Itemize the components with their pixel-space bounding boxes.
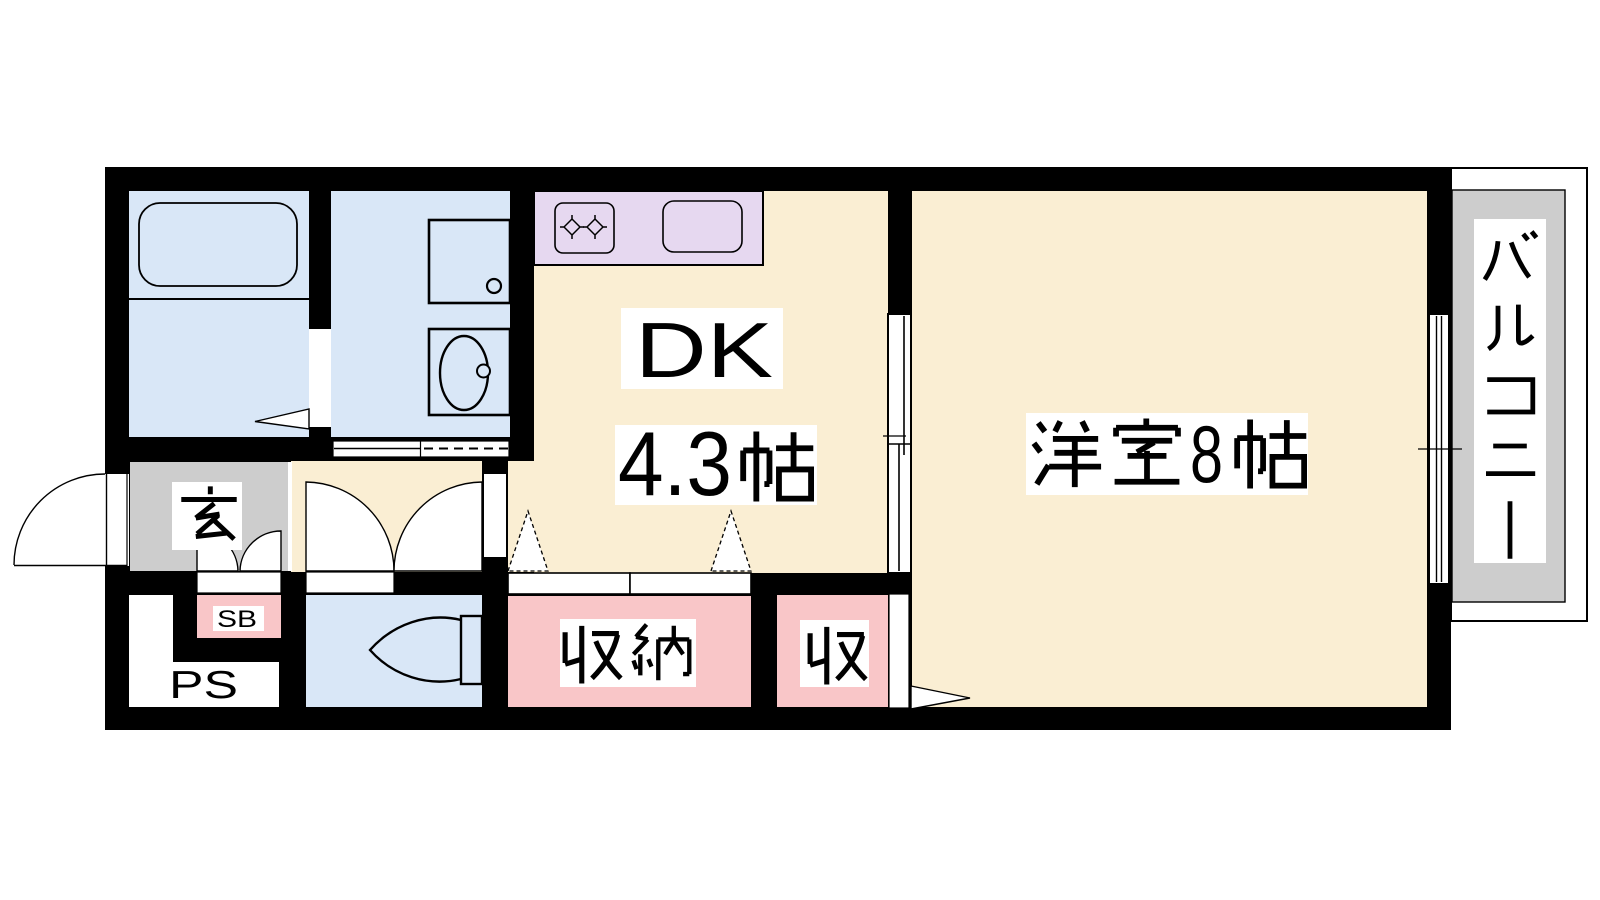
svg-text:8: 8	[1190, 410, 1223, 500]
svg-text:4.3: 4.3	[618, 414, 732, 515]
svg-text:SB: SB	[217, 606, 257, 633]
svg-text:DK: DK	[635, 306, 773, 394]
svg-text:PS: PS	[169, 664, 238, 707]
